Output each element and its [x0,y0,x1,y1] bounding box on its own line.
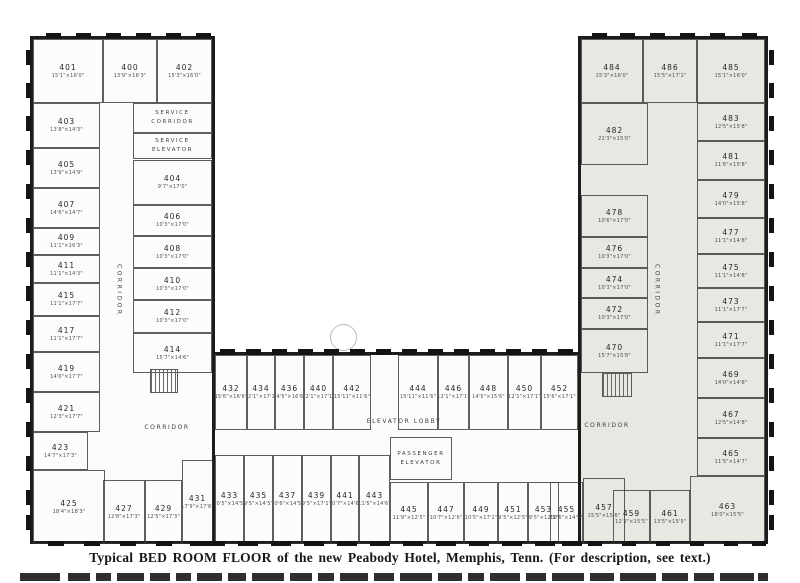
room-450: 45012'1"×17'1" [508,355,541,430]
next-figure-segment [150,573,170,581]
room-459: 45912'3"×15'5" [613,490,650,544]
room-419: 41914'0"×17'7" [33,352,100,392]
room-dims: 10'7"×12'6" [430,515,463,521]
room-443: 44311'5"×14'6" [359,455,390,544]
next-figure-segment [590,573,614,581]
room-433: 43310'5"×14'5" [215,455,244,544]
room-dims: 11'1"×17'7" [50,301,83,307]
room-number: 443 [366,492,383,500]
room-dims: 11'1"×17'7" [715,307,748,313]
next-figure-segment [197,573,222,581]
room-dims: 14'0"×14'8" [715,380,748,386]
room-484: 48415'3"×16'0" [581,39,643,103]
room-441: 44110'7"×14'6" [331,455,359,544]
room-number: 409 [58,234,75,242]
window-mark [710,33,725,38]
room-439: 4399'5"×17'1" [302,455,331,544]
window-mark [403,541,423,546]
window-mark [769,252,774,267]
room-486: 48615'5"×17'1" [643,39,697,103]
room-dims: 10'5"×14'5" [215,501,244,507]
window-mark [84,541,100,546]
room-477: 47711'1"×14'8" [697,218,765,254]
window-mark [26,50,31,65]
window-mark [376,349,391,355]
room-dims: 11'6"×15'8" [715,162,748,168]
room-436: 43614'5"×16'6" [275,355,304,430]
room-dims: 11'1"×17'7" [50,336,83,342]
window-mark [769,83,774,98]
room-432: 43215'6"×16'6" [215,355,247,430]
room-number: 410 [164,277,181,285]
room-number: 442 [343,385,360,393]
room-409: 40911'1"×16'3" [33,228,100,255]
room-dims: 9'5"×12'5" [498,515,527,521]
next-figure-segment [68,573,90,581]
room-number: 417 [58,327,75,335]
room-number: 402 [176,64,193,72]
window-mark [26,388,31,403]
room-number: 479 [722,192,739,200]
room-number: 482 [606,127,623,135]
room-number: 432 [222,385,239,393]
next-figure-segment [758,573,768,581]
room-dims: 12'5"×17'3" [147,514,180,520]
room-number: 485 [722,64,739,72]
window-mark [769,286,774,301]
room-number: 419 [58,365,75,373]
window-mark [205,541,225,546]
room-408: 40810'3"×17'0" [133,236,212,268]
room-425: 42518'4"×18'3" [33,470,105,544]
room-461: 46113'5"×15'5" [650,490,690,544]
room-dims: 13'8"×14'3" [50,127,83,133]
window-mark [350,349,365,355]
room-number: 404 [164,175,181,183]
room-472: 47210'3"×17'0" [581,298,648,329]
service-corridor-label: SERVICE CORRIDOR [133,103,212,133]
room-number: 463 [719,503,736,511]
window-mark [724,541,738,546]
room-dims: 15'11"×11'6" [334,394,370,400]
room-dims: 15'1"×16'0" [715,73,748,79]
window-mark [26,515,31,530]
room-dims: 14'5"×15'6" [472,394,505,400]
room-dims: 11'1"×17'7" [715,342,748,348]
room-dims: 14'7"×17'3" [44,453,77,459]
room-479: 47914'0"×15'8" [697,180,765,218]
window-mark [120,541,136,546]
room-dims: 10'3"×17'0" [598,254,631,260]
window-mark [506,349,521,355]
room-number: 403 [58,118,75,126]
room-427: 42712'8"×17'3" [103,480,145,544]
next-figure-segment [318,573,334,581]
next-figure-segment [620,573,656,581]
window-mark [106,33,121,38]
room-dims: 15'5"×17'1" [654,73,687,79]
room-number: 467 [722,411,739,419]
room-403: 40313'8"×14'3" [33,103,100,148]
room-number: 459 [623,510,640,518]
room-number: 452 [551,385,568,393]
window-mark [238,541,258,546]
room-dims: 10'6"×17'0" [598,218,631,224]
window-mark [156,541,172,546]
next-figure-segment [374,573,394,581]
window-mark [650,33,665,38]
corridor-label-right-wing: CORRIDOR [652,238,661,343]
room-dims: 18'4"×18'3" [53,509,86,515]
window-mark [190,541,206,546]
room-number: 455 [558,506,575,514]
room-dims: 10'3"×17'0" [598,315,631,321]
room-431: 43117'9"×17'6" [182,460,213,544]
window-mark [220,349,235,355]
window-mark [26,83,31,98]
room-440: 44012'1"×17'1" [304,355,333,430]
room-dims: 10'6"×14'5" [550,515,583,521]
room-dims: 12'5"×14'8" [715,420,748,426]
room-number: 441 [336,492,353,500]
window-mark [76,33,91,38]
room-number: 474 [606,276,623,284]
room-number: 401 [59,64,76,72]
room-dims: 11'1"×14'8" [715,273,748,279]
window-mark [26,490,31,505]
window-mark [246,349,261,355]
window-mark [26,422,31,437]
window-mark [26,184,31,199]
next-figure-segment [96,573,111,581]
room-dims: 15'1"×16'0" [52,73,85,79]
room-405: 40513'9"×14'9" [33,148,100,188]
room-dims: 17'9"×17'6" [182,504,213,510]
room-478: 47810'6"×17'0" [581,195,648,237]
room-number: 445 [400,506,417,514]
room-482: 48221'3"×15'0" [581,103,648,165]
room-429: 42912'5"×17'3" [145,480,182,544]
window-mark [502,541,522,546]
window-mark [428,349,443,355]
room-475: 47511'1"×14'8" [697,254,765,288]
window-mark [480,349,495,355]
corridor-label-left-wing: CORRIDOR [114,238,123,343]
room-dims: 10'3"×17'0" [156,318,189,324]
room-dims: 12'8"×17'3" [108,514,141,520]
service-elevator-label: SERVICE ELEVATOR [133,133,212,159]
room-dims: 12'1"×17'1" [304,394,333,400]
next-figure-segment [117,573,144,581]
window-mark [742,33,757,38]
room-number: 400 [121,64,138,72]
room-473: 47311'1"×17'7" [697,288,765,322]
room-415: 41511'1"×17'7" [33,283,100,316]
window-mark [271,541,291,546]
window-mark [166,33,181,38]
room-dims: 11'5"×14'6" [359,501,390,507]
room-410: 41010'3"×17'0" [133,268,212,300]
window-mark [769,218,774,233]
room-dims: 9'5"×14'5" [244,501,273,507]
window-mark [769,116,774,131]
window-mark [370,541,390,546]
room-dims: 15'3"×16'0" [596,73,629,79]
window-mark [769,150,774,165]
next-figure-segment [228,573,246,581]
room-dims: 12'1"×17'1" [508,394,541,400]
window-mark [298,349,313,355]
room-423: 42314'7"×17'3" [33,432,88,470]
next-figure-segment [340,573,368,581]
room-467: 46712'5"×14'8" [697,398,765,438]
window-mark [532,349,547,355]
room-471: 47111'1"×17'7" [697,322,765,358]
window-mark [48,541,64,546]
window-mark [769,456,774,471]
window-mark [562,541,582,546]
window-mark [620,33,635,38]
window-mark [752,541,766,546]
next-figure-segment [290,573,312,581]
room-number: 434 [252,385,269,393]
passenger-elevator-label: PASSENGER ELEVATOR [390,437,452,480]
window-mark [46,33,61,38]
room-447: 44710'7"×12'6" [428,482,464,544]
window-mark [272,349,287,355]
window-mark [469,541,489,546]
window-mark [196,33,211,38]
room-number: 406 [164,213,181,221]
window-mark [558,349,573,355]
room-411: 41111'1"×14'3" [33,255,100,283]
room-481: 48111'6"×15'8" [697,141,765,180]
room-445: 44511'9"×12'5" [390,482,428,544]
room-number: 439 [308,492,325,500]
room-number: 407 [58,201,75,209]
room-400: 40013'9"×16'3" [103,39,157,103]
window-mark [26,320,31,335]
next-figure-segment [552,573,584,581]
room-number: 448 [480,385,497,393]
room-417: 41711'1"×17'7" [33,316,100,352]
room-dims: 10'5"×17'1" [465,515,498,521]
room-number: 486 [661,64,678,72]
room-469: 46914'0"×14'8" [697,358,765,398]
room-number: 440 [310,385,327,393]
next-figure-segment [438,573,462,581]
room-dims: 14'0"×17'7" [50,374,83,380]
window-mark [769,422,774,437]
room-407: 40714'6"×14'7" [33,188,100,228]
room-dims: 14'6"×14'7" [50,210,83,216]
room-number: 423 [52,444,69,452]
room-414: 41415'7"×14'6" [133,333,212,373]
room-452: 45215'6"×17'1" [541,355,578,430]
window-mark [592,33,607,38]
room-number: 475 [722,264,739,272]
room-number: 465 [722,450,739,458]
room-dims: 10'7"×14'6" [331,501,359,507]
room-dims: 11'1"×16'3" [50,243,83,249]
room-449: 44910'5"×17'1" [464,482,498,544]
room-number: 477 [722,229,739,237]
window-mark [26,150,31,165]
window-mark [304,541,324,546]
room-number: 414 [164,346,181,354]
room-437: 43710'6"×14'5" [273,455,302,544]
room-dims: 11'9"×12'5" [393,515,426,521]
room-448: 44814'5"×15'6" [469,355,508,430]
window-mark [769,184,774,199]
room-dims: 10'6"×14'5" [273,501,302,507]
room-number: 412 [164,309,181,317]
window-mark [769,320,774,335]
room-number: 425 [60,500,77,508]
next-figure-segment [468,573,484,581]
room-dims: 10'3"×17'0" [156,222,189,228]
room-dims: 12'5"×15'8" [715,124,748,130]
window-mark [436,541,456,546]
window-mark [26,456,31,471]
room-number: 405 [58,161,75,169]
room-number: 433 [221,492,238,500]
room-476: 47610'3"×17'0" [581,237,648,268]
window-mark [535,541,555,546]
room-465: 46511'5"×14'7" [697,438,765,476]
next-figure-segment [720,573,754,581]
room-number: 481 [722,153,739,161]
room-number: 421 [58,405,75,413]
room-number: 444 [409,385,426,393]
window-mark [26,218,31,233]
room-number: 449 [472,506,489,514]
room-434: 43412'1"×17'1" [247,355,275,430]
room-dims: 11'5"×14'7" [715,459,748,465]
room-412: 41210'3"×17'0" [133,300,212,333]
room-number: 470 [606,344,623,352]
room-dims: 11'1"×14'8" [715,238,748,244]
window-mark [26,354,31,369]
window-mark [26,252,31,267]
room-470: 47015'7"×15'8" [581,329,648,373]
room-dims: 15'11"×11'6" [400,394,436,400]
floor-plan: 40115'1"×16'0"40013'9"×16'3"40215'3"×16'… [0,0,800,583]
stairs-left-wing [150,369,178,393]
window-mark [454,349,469,355]
room-485: 48515'1"×16'0" [697,39,765,103]
room-dims: 15'3"×16'0" [168,73,201,79]
window-mark [690,541,704,546]
room-number: 436 [281,385,298,393]
window-mark [769,515,774,530]
room-dims: 12'1"×17'1" [247,394,275,400]
room-dims: 15'6"×17'1" [543,394,576,400]
room-number: 457 [595,504,612,512]
window-mark [769,490,774,505]
next-figure-segment [252,573,284,581]
next-figure-segment [694,573,714,581]
room-dims: 12'3"×15'5" [615,519,648,525]
room-dims: 11'1"×14'3" [50,271,83,277]
room-number: 469 [722,371,739,379]
room-dims: 14'5"×16'6" [275,394,304,400]
room-401: 40115'1"×16'0" [33,39,103,103]
room-451: 4519'5"×12'5" [498,482,528,544]
room-number: 446 [445,385,462,393]
room-number: 472 [606,306,623,314]
window-mark [769,388,774,403]
room-dims: 21'3"×15'0" [598,136,631,142]
room-number: 429 [155,505,172,513]
room-number: 447 [437,506,454,514]
room-dims: 15'7"×15'8" [598,353,631,359]
room-number: 411 [58,262,75,270]
window-mark [680,33,695,38]
room-number: 478 [606,209,623,217]
room-406: 40610'3"×17'0" [133,205,212,236]
next-figure-segment [20,573,60,581]
window-mark [402,349,417,355]
room-number: 484 [603,64,620,72]
window-mark [136,33,151,38]
room-483: 48312'5"×15'8" [697,103,765,141]
room-dims: 12'3"×17'7" [50,414,83,420]
window-mark [324,349,339,355]
next-figure-segment [526,573,546,581]
room-dims: 9'5"×17'1" [302,501,331,507]
room-number: 431 [189,495,206,503]
room-421: 42112'3"×17'7" [33,392,100,432]
room-number: 437 [279,492,296,500]
room-dims: 18'0"×15'5" [711,512,744,518]
room-number: 451 [504,506,521,514]
window-mark [26,116,31,131]
room-dims: 15'6"×16'6" [215,394,247,400]
next-figure-segment [490,573,520,581]
window-mark [622,541,636,546]
room-number: 415 [58,292,75,300]
room-number: 450 [516,385,533,393]
stairs-right-wing [602,373,632,397]
room-dims: 14'0"×15'8" [715,201,748,207]
room-dims: 12'1"×17'1" [438,394,469,400]
room-number: 483 [722,115,739,123]
next-figure-segment [176,573,191,581]
room-number: 461 [661,510,678,518]
corridor-label-center-right: CORRIDOR [568,421,646,430]
figure-caption: Typical BED ROOM FLOOR of the new Peabod… [0,550,800,566]
room-dims: 10'3"×17'0" [156,286,189,292]
room-dims: 13'9"×14'9" [50,170,83,176]
room-404: 4049'7"×17'0" [133,160,212,205]
room-number: 476 [606,245,623,253]
room-dims: 15'7"×14'6" [156,355,189,361]
room-dims: 10'3"×17'0" [598,285,631,291]
window-mark [26,286,31,301]
room-455: 45510'6"×14'5" [550,482,583,544]
corridor-label-center-left: CORRIDOR [128,423,206,432]
room-435: 4359'5"×14'5" [244,455,273,544]
room-463: 46318'0"×15'5" [690,476,765,544]
room-dims: 10'3"×17'0" [156,254,189,260]
window-mark [769,354,774,369]
room-number: 427 [115,505,132,513]
room-dims: 9'7"×17'0" [158,184,187,190]
window-mark [769,50,774,65]
window-mark [337,541,357,546]
room-number: 408 [164,245,181,253]
